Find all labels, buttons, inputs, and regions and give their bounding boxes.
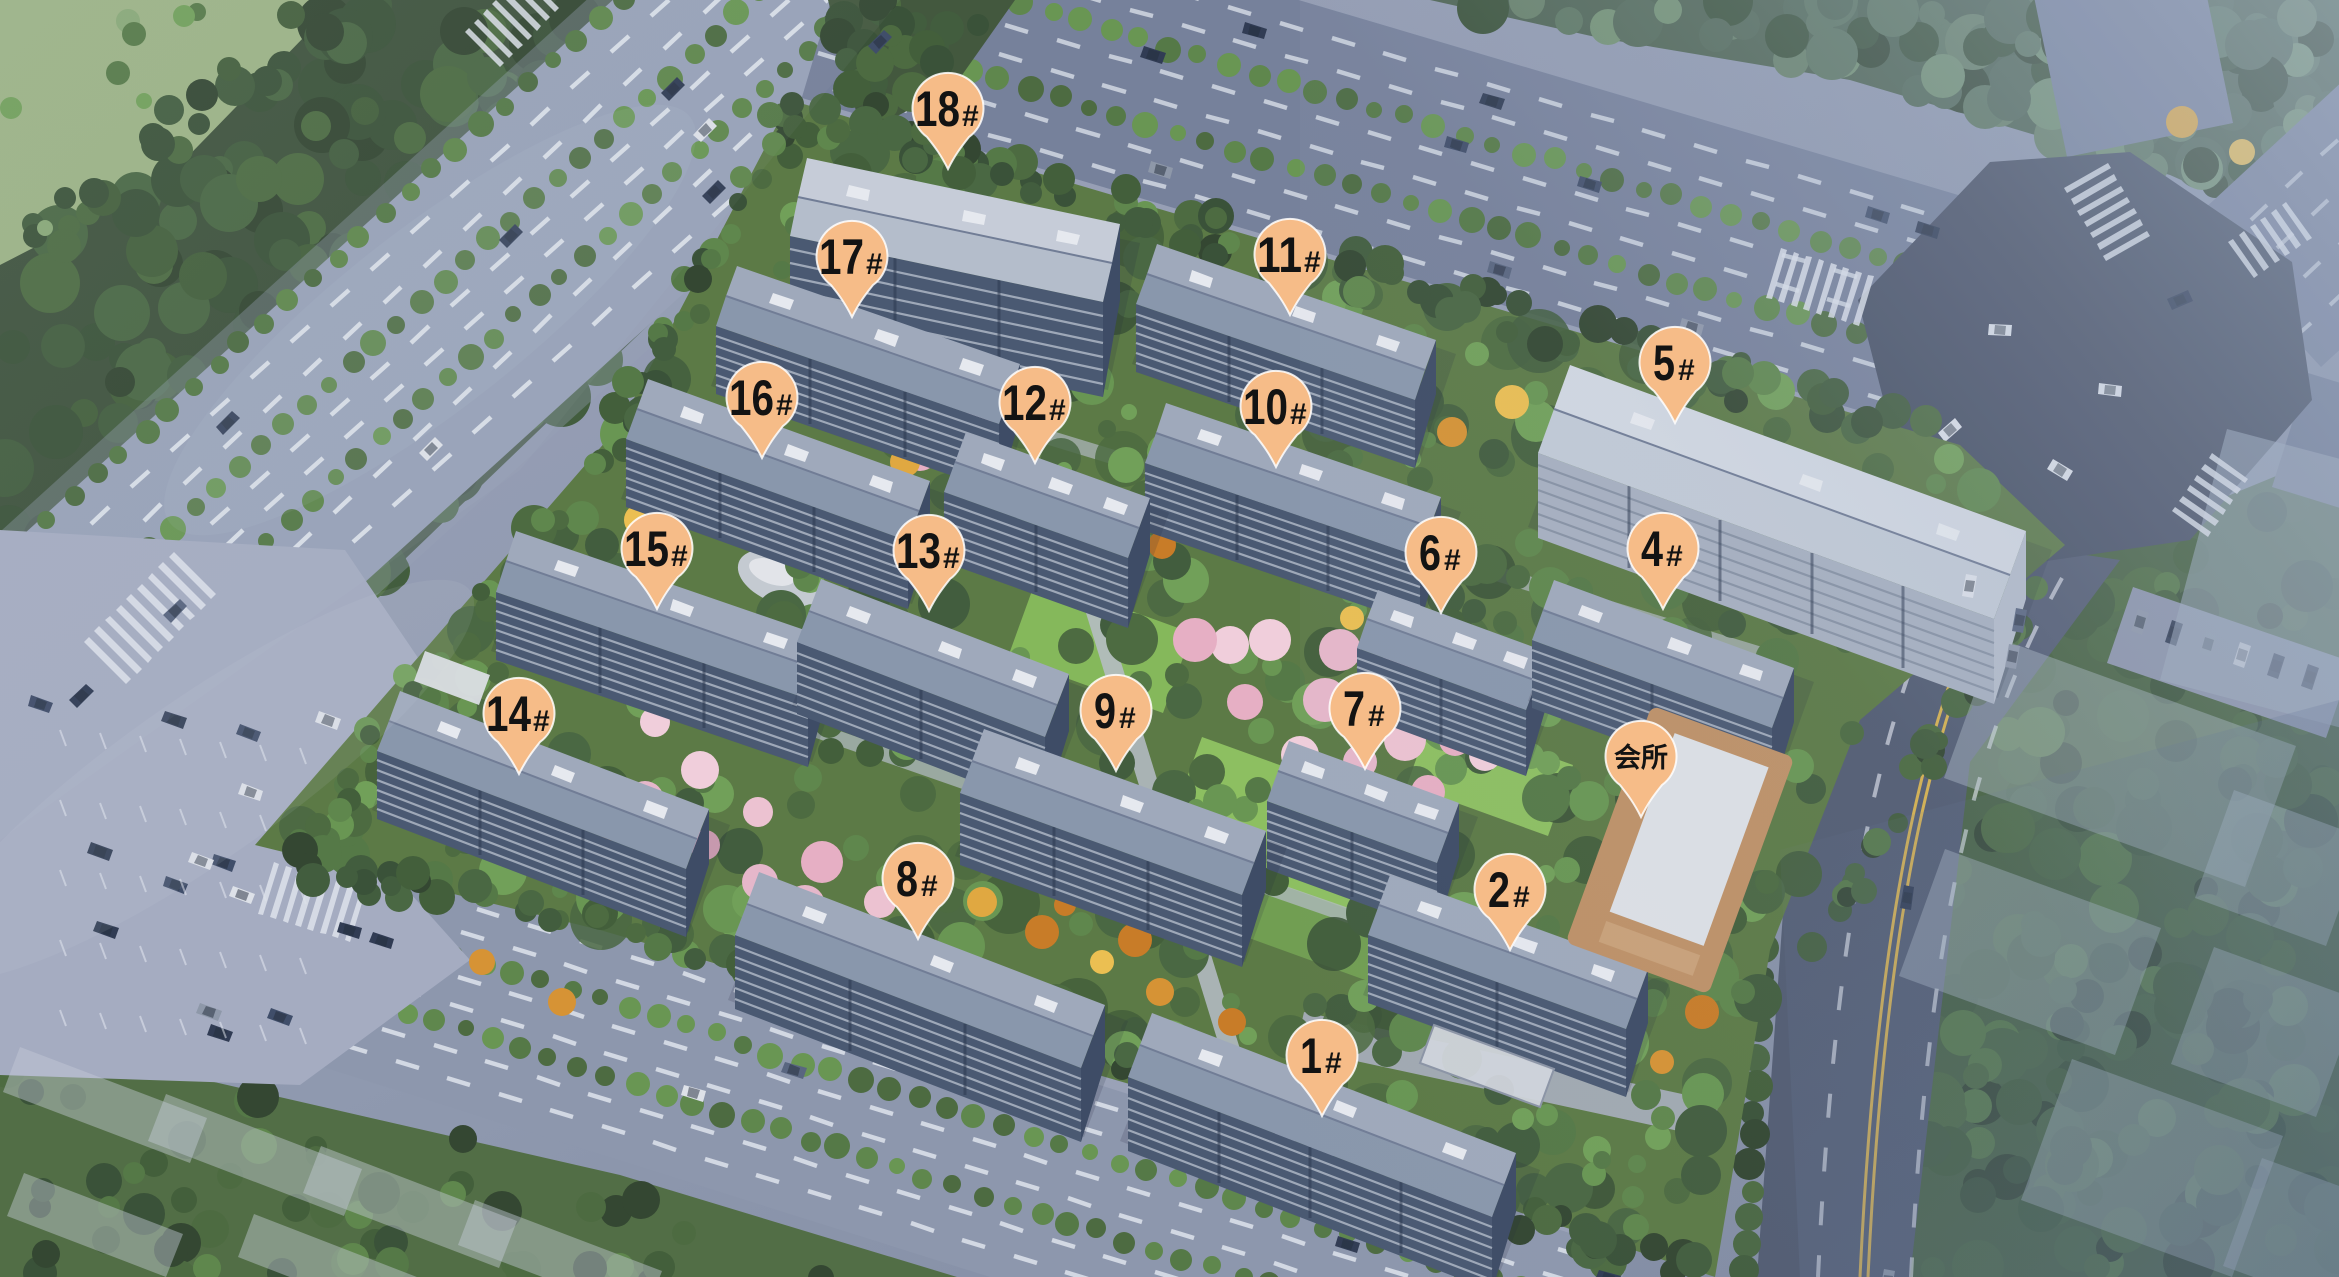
svg-text:#: # xyxy=(1444,544,1461,577)
svg-text:#: # xyxy=(1304,246,1321,279)
svg-text:11: 11 xyxy=(1257,227,1302,283)
svg-text:16: 16 xyxy=(729,370,774,426)
svg-text:12: 12 xyxy=(1002,375,1047,431)
svg-text:2: 2 xyxy=(1488,862,1510,918)
svg-text:#: # xyxy=(671,540,688,573)
svg-text:#: # xyxy=(1666,540,1683,573)
svg-text:#: # xyxy=(921,870,938,903)
svg-text:#: # xyxy=(1678,354,1695,387)
svg-text:5: 5 xyxy=(1653,335,1675,391)
svg-text:1: 1 xyxy=(1300,1028,1322,1084)
svg-text:#: # xyxy=(1290,398,1307,431)
svg-text:会所: 会所 xyxy=(1614,743,1668,773)
svg-text:9: 9 xyxy=(1094,683,1116,739)
svg-text:#: # xyxy=(1513,881,1530,914)
svg-text:15: 15 xyxy=(624,521,669,577)
svg-text:#: # xyxy=(943,542,960,575)
svg-text:17: 17 xyxy=(819,229,864,285)
svg-text:8: 8 xyxy=(896,851,918,907)
svg-text:#: # xyxy=(1325,1047,1342,1080)
svg-text:6: 6 xyxy=(1419,525,1441,581)
svg-text:#: # xyxy=(1119,702,1136,735)
svg-text:#: # xyxy=(1368,700,1385,733)
svg-text:#: # xyxy=(533,705,550,738)
svg-text:#: # xyxy=(866,248,883,281)
svg-text:10: 10 xyxy=(1243,379,1288,435)
svg-text:4: 4 xyxy=(1641,521,1663,577)
svg-text:#: # xyxy=(776,389,793,422)
svg-text:#: # xyxy=(1049,394,1066,427)
svg-text:#: # xyxy=(962,100,979,133)
svg-text:13: 13 xyxy=(896,523,941,579)
svg-text:14: 14 xyxy=(486,686,531,742)
svg-text:18: 18 xyxy=(915,81,960,137)
svg-text:7: 7 xyxy=(1343,681,1365,737)
